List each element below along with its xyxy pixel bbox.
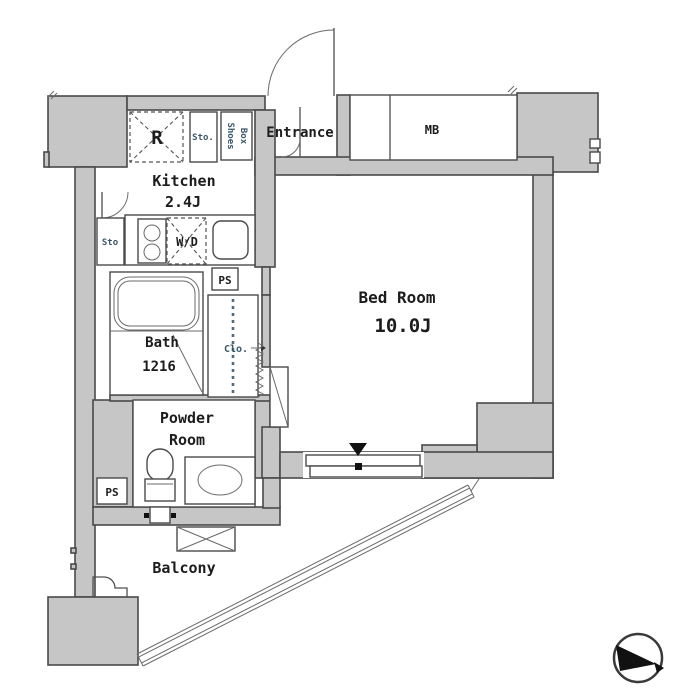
wall-powder-bedroom-joint — [263, 478, 280, 508]
entrance-door-arc — [268, 30, 334, 96]
refrigerator-space: R — [130, 112, 183, 162]
north-compass-icon — [614, 634, 664, 682]
storage-side: Sto — [97, 218, 124, 265]
balcony-step — [93, 577, 127, 597]
storage-upper-label: Sto. — [192, 133, 214, 143]
shoes-box-label-2: Box — [238, 128, 248, 145]
washroom-door — [102, 192, 128, 218]
refrigerator-label: R — [151, 127, 163, 149]
powder-room: Powder Room — [133, 400, 255, 523]
wall-notch-2 — [590, 152, 600, 163]
bedroom-label: Bed Room — [358, 288, 435, 307]
closet: Clo. — [208, 295, 266, 397]
bathroom: Bath 1216 — [110, 272, 203, 395]
bath-label: Bath — [145, 335, 179, 351]
wall-tick-2 — [71, 564, 76, 569]
ac-unit-space — [177, 527, 235, 551]
pipe-space-upper: PS — [212, 268, 238, 290]
wall-top-left-block — [48, 96, 127, 167]
vanity-sink — [185, 457, 255, 504]
balcony-label: Balcony — [152, 559, 215, 577]
storage-side-label: Sto — [102, 238, 118, 248]
pipe-space-lower-label: PS — [105, 486, 118, 499]
kitchen-size-label: 2.4J — [165, 193, 201, 211]
bath-size-label: 1216 — [142, 359, 176, 375]
wall-powder-bottom — [93, 507, 280, 525]
powder-room-label-1: Powder — [160, 409, 214, 427]
floor-plan: MB Entrance R Sto. Shoes Box Kitchen 2.4… — [0, 0, 700, 696]
entrance: Entrance — [266, 28, 334, 157]
wall-tick-1 — [71, 548, 76, 553]
bedroom-size-label: 10.0J — [374, 315, 431, 337]
wall-below-door — [262, 427, 280, 478]
wall-segment-ps — [262, 267, 270, 295]
entrance-label: Entrance — [266, 125, 333, 141]
pipe-space-lower: PS — [97, 478, 127, 504]
wall-bottom-left-column — [48, 597, 138, 665]
meter-box: MB — [350, 95, 517, 160]
kitchen-sink — [213, 221, 248, 259]
shoes-box: Shoes Box — [221, 112, 252, 160]
closet-label: Clo. — [224, 344, 248, 355]
powder-room-label-2: Room — [169, 431, 205, 449]
wall-top-band — [127, 96, 265, 110]
wall-notch-1 — [590, 139, 600, 148]
washer-dryer-label: W/D — [176, 235, 198, 249]
wall-closet-side — [262, 295, 270, 367]
kitchen-label: Kitchen — [152, 172, 215, 190]
floor-plan-page: MB Entrance R Sto. Shoes Box Kitchen 2.4… — [0, 0, 700, 696]
shoes-box-label-1: Shoes — [225, 122, 235, 149]
wall-top-left-foot — [44, 152, 49, 167]
pipe-space-upper-label: PS — [218, 274, 231, 287]
storage-upper: Sto. — [190, 112, 217, 162]
wall-left — [75, 167, 95, 597]
kitchen-counter: W/D — [125, 215, 255, 265]
bedroom-window — [303, 443, 424, 478]
bedroom-door — [270, 367, 288, 427]
meter-box-label: MB — [425, 123, 439, 137]
